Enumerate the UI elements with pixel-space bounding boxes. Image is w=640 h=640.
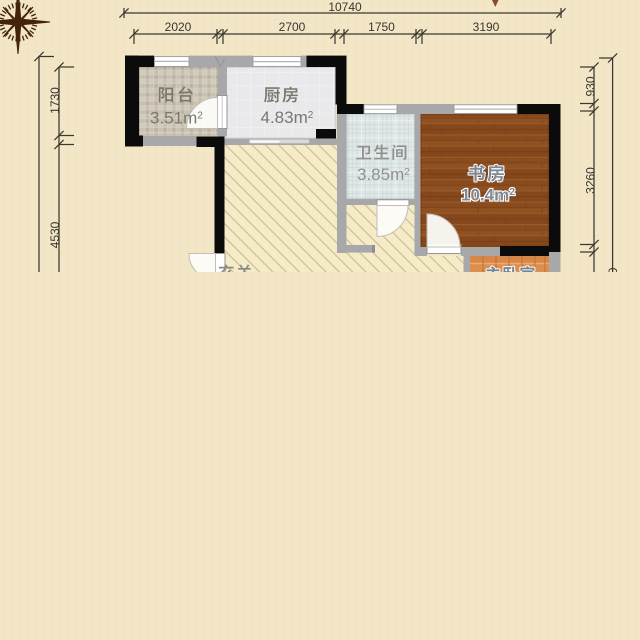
svg-text:1730: 1730 <box>48 87 62 114</box>
svg-text:1750: 1750 <box>368 20 395 34</box>
svg-text:10740: 10740 <box>328 0 362 14</box>
svg-text:2700: 2700 <box>279 20 306 34</box>
svg-text:3190: 3190 <box>473 20 500 34</box>
svg-text:4530: 4530 <box>48 221 62 248</box>
svg-text:930: 930 <box>584 76 598 96</box>
svg-text:2020: 2020 <box>165 20 192 34</box>
svg-text:3.85m2: 3.85m2 <box>357 165 410 184</box>
svg-text:3.51m2: 3.51m2 <box>150 109 203 128</box>
svg-text:10.4m2: 10.4m2 <box>461 186 515 205</box>
svg-text:4.83m2: 4.83m2 <box>261 108 314 127</box>
svg-text:3260: 3260 <box>584 167 598 194</box>
